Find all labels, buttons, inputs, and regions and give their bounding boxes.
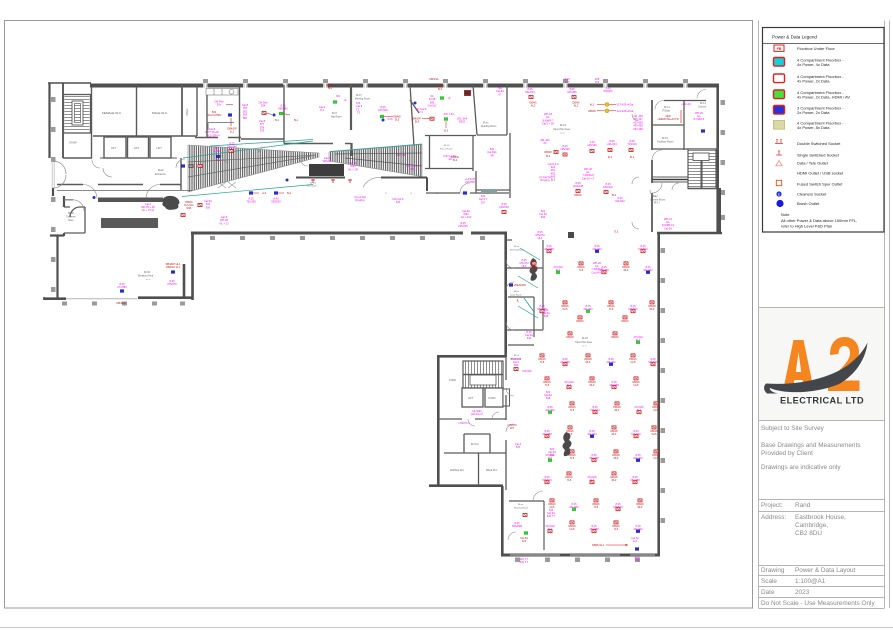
svg-text:IR-19: IR-19 [560, 124, 567, 127]
svg-text:Date: Date [761, 589, 775, 596]
svg-text:646: 646 [544, 314, 549, 318]
svg-text:2x2: 2x2 [633, 539, 638, 543]
svg-text:Address:: Address: [761, 514, 786, 521]
svg-text:+6: +6 [448, 96, 452, 100]
svg-text:HL + 12: HL + 12 [219, 221, 229, 225]
svg-text:LIFT: LIFT [468, 397, 474, 400]
svg-text:Project:: Project: [761, 502, 783, 509]
svg-text:021/022: 021/022 [615, 199, 625, 203]
svg-text:4x Power, 8x Data: 4x Power, 8x Data [797, 125, 830, 130]
svg-text:7L5: 7L5 [570, 456, 575, 460]
svg-text:Facilities Room: Facilities Room [657, 141, 673, 144]
svg-text:GL5: GL5 [634, 383, 639, 387]
svg-text:FEMALE W.C: FEMALE W.C [450, 469, 465, 472]
svg-text:Scale: Scale [761, 578, 777, 585]
svg-text:Reception: Reception [307, 185, 318, 188]
svg-text:5L2: 5L2 [546, 154, 551, 158]
svg-text:IR-18: IR-18 [582, 337, 589, 340]
svg-text:7L5: 7L5 [545, 383, 550, 387]
svg-text:4L1: 4L1 [608, 155, 613, 159]
svg-text:5x5 1.5m: 5x5 1.5m [444, 112, 455, 116]
svg-text:Floorbox Under Floor: Floorbox Under Floor [797, 46, 835, 51]
svg-text:Note: Note [781, 212, 790, 217]
svg-text:HL2: HL2 [538, 236, 543, 240]
svg-text:RL3: RL3 [612, 478, 617, 482]
svg-text:HL + TO H: HL + TO H [142, 208, 154, 212]
svg-text:LIFT: LIFT [134, 146, 140, 150]
svg-text:+REMOTE+ACTR: +REMOTE+ACTR [657, 117, 678, 121]
svg-text:Cat 6 + 5A: Cat 6 + 5A [542, 122, 555, 126]
svg-text:545(45): 545(45) [604, 89, 613, 93]
svg-text:7L5: 7L5 [579, 268, 584, 272]
svg-text:GL5: GL5 [532, 268, 537, 272]
svg-text:AL2: AL2 [574, 104, 579, 108]
svg-text:MALE W.C: MALE W.C [486, 469, 498, 472]
svg-text:HL1+1R+H: HL1+1R+H [207, 133, 220, 137]
svg-text:Focus Room: Focus Room [440, 148, 453, 150]
svg-text:All other Power & Data above 1: All other Power & Data above 150mm FFL, [781, 218, 857, 223]
svg-text:Base Drawings and Measurements: Base Drawings and Measurements [761, 442, 860, 449]
svg-text:Comms: Comms [698, 106, 707, 109]
svg-text:HDMI Outlet / USB socket: HDMI Outlet / USB socket [797, 171, 844, 176]
svg-text:275/276: 275/276 [167, 282, 177, 286]
svg-text:GL5: GL5 [631, 360, 636, 364]
svg-text:DB4/6A: DB4/6A [117, 301, 126, 305]
svg-text:Data / Tele Outlet: Data / Tele Outlet [797, 161, 829, 166]
svg-text:579: 579 [260, 129, 265, 133]
svg-text:HL + 1R: HL + 1R [348, 167, 358, 171]
svg-text:IR-xx: IR-xx [514, 291, 520, 293]
svg-text:017-423+4Cat: 017-423+4Cat [617, 103, 634, 107]
svg-text:IR-xx: IR-xx [514, 246, 520, 248]
svg-text:5L1: 5L1 [216, 159, 221, 162]
svg-text:640 T.T: 640 T.T [547, 514, 556, 518]
svg-text:+20/+21: +20/+21 [681, 102, 691, 106]
svg-text:277/280: 277/280 [117, 285, 127, 289]
svg-text:RISER: RISER [186, 108, 189, 116]
svg-text:4T6: 4T6 [635, 558, 640, 562]
svg-text:545/546: 545/546 [227, 145, 237, 149]
svg-text:225/226: 225/226 [458, 224, 468, 228]
svg-text:GL5: GL5 [654, 408, 659, 412]
svg-text:5L1: 5L1 [438, 87, 443, 91]
svg-text:541/044: 541/044 [525, 90, 535, 94]
svg-text:RL3: RL3 [615, 408, 620, 412]
svg-text:7L5: 7L5 [594, 505, 599, 509]
svg-text:Meeting Room: Meeting Room [514, 507, 528, 510]
svg-text:c: c [778, 192, 780, 196]
svg-text:RL3: RL3 [612, 432, 617, 436]
svg-text:2: 2 [385, 193, 387, 195]
svg-text:DB4/4A 1L1: DB4/4A 1L1 [166, 265, 180, 269]
svg-text:L: L [517, 299, 519, 303]
svg-text:Open Plan Area: Open Plan Area [553, 128, 571, 131]
svg-text:Cambridge,: Cambridge, [795, 522, 828, 529]
svg-text:934: 934 [261, 104, 266, 108]
svg-text:600: 600 [541, 215, 546, 219]
svg-text:213: 213 [595, 80, 600, 84]
svg-text:GL5: GL5 [654, 456, 659, 460]
svg-text:5L2: 5L2 [453, 158, 458, 162]
svg-text:4L2: 4L2 [590, 103, 595, 107]
svg-text:(234/238: (234/238 [573, 184, 584, 188]
svg-text:Meeting Room: Meeting Room [510, 249, 524, 252]
svg-text:RL3: RL3 [590, 383, 595, 387]
svg-text:8-x5: 8-x5 [387, 117, 393, 121]
svg-text:Double Switched Socket: Double Switched Socket [797, 141, 841, 146]
svg-text:STAIR: STAIR [69, 141, 77, 145]
svg-text:555/560: 555/560 [271, 200, 281, 204]
svg-text:LIFT: LIFT [111, 146, 117, 150]
svg-text:184/4(2): 184/4(2) [603, 185, 613, 189]
svg-text:COMS: COMS [488, 397, 496, 400]
svg-text:HL + 110: HL + 110 [461, 215, 472, 219]
svg-text:241/244: 241/244 [607, 142, 617, 146]
svg-text:7L5: 7L5 [609, 307, 614, 311]
svg-text:Rand: Rand [795, 502, 811, 509]
svg-text:1L1: 1L1 [230, 130, 235, 134]
svg-text:2x Power, 2x Data: 2x Power, 2x Data [797, 110, 830, 115]
svg-text:30+: 30+ [217, 103, 222, 107]
svg-text:7L5: 7L5 [568, 432, 573, 436]
svg-text:DB4/6: DB4/6 [574, 193, 582, 197]
svg-text:4x Power, 4x Data: 4x Power, 4x Data [797, 62, 830, 67]
svg-text:5x5: 5x5 [516, 445, 521, 449]
svg-text:307: 307 [510, 426, 515, 430]
svg-text:Routing: Routing [356, 198, 365, 202]
svg-text:IR-xx: IR-xx [514, 355, 520, 357]
svg-text:DB4/6: DB4/6 [611, 335, 619, 339]
svg-text:545(4B): 545(4B) [567, 90, 576, 94]
svg-text:refer to High Level P&D Plan: refer to High Level P&D Plan [781, 224, 832, 229]
svg-text:5x5 600: 5x5 600 [522, 369, 532, 373]
svg-text:Open Plan Area: Open Plan Area [575, 341, 593, 344]
svg-text:5L1: 5L1 [612, 193, 617, 197]
svg-text:DB4/6: DB4/6 [576, 319, 584, 323]
svg-text:Store: Store [68, 219, 74, 222]
svg-text:HL2: HL2 [522, 264, 527, 268]
svg-text:125/126: 125/126 [560, 147, 570, 151]
svg-text:Mtg Room: Mtg Room [331, 116, 342, 119]
svg-text:8-VWR-4: 8-VWR-4 [694, 117, 705, 121]
svg-text:GL5: GL5 [570, 527, 575, 531]
svg-text:xx m: xx m [582, 346, 587, 348]
svg-text:Subject to Site Survey: Subject to Site Survey [761, 425, 825, 432]
svg-text:176/07h +: 176/07h + [458, 421, 470, 425]
svg-text:3R: 3R [490, 153, 493, 157]
svg-text:648: 648 [546, 396, 551, 400]
svg-text:T3: T3 [357, 111, 361, 115]
svg-text:5L1: 5L1 [275, 119, 280, 122]
svg-text:+6: +6 [344, 98, 348, 102]
svg-text:DB4/8: DB4/8 [588, 109, 596, 113]
svg-text:7L5: 7L5 [570, 408, 575, 412]
svg-text:5L1: 5L1 [328, 86, 333, 90]
svg-text:IR-10: IR-10 [444, 145, 450, 147]
svg-text:Power & Data Layout: Power & Data Layout [795, 567, 856, 574]
svg-text:MALE W.C: MALE W.C [152, 111, 168, 115]
svg-text:RL3: RL3 [638, 505, 643, 509]
svg-text:4x Power, 2x Data: 4x Power, 2x Data [797, 78, 830, 83]
svg-text:Cat 5x2: Cat 5x2 [428, 104, 437, 108]
svg-text:T15/116: T15/116 [627, 142, 637, 146]
svg-text:Drawings are indicative only: Drawings are indicative only [761, 464, 841, 471]
svg-text:125/126: 125/126 [587, 143, 597, 147]
svg-text:h/D: h/D [336, 94, 340, 98]
svg-text:5L2: 5L2 [630, 155, 635, 159]
svg-text:B2 W.C: B2 W.C [471, 444, 479, 446]
svg-text:Meeting Room: Meeting Room [355, 98, 370, 101]
svg-text:AL2: AL2 [531, 104, 536, 108]
svg-text:DB4/8: DB4/8 [544, 150, 552, 154]
svg-text:xx m: xx m [146, 279, 151, 281]
svg-text:Reading Room: Reading Room [481, 126, 496, 128]
svg-text:7L5: 7L5 [614, 527, 619, 531]
svg-text:IR-17: IR-17 [654, 202, 661, 205]
svg-text:5x5: 5x5 [514, 363, 519, 367]
svg-text:Provided by Client: Provided by Client [761, 450, 813, 457]
svg-text:8.25/HS/WC: 8.25/HS/WC [512, 283, 527, 287]
svg-text:7L5: 7L5 [540, 360, 545, 364]
svg-text:Cat 6A + 5: Cat 6A + 5 [582, 176, 595, 180]
svg-text:D622: D622 [459, 120, 466, 124]
svg-text:RL3: RL3 [614, 456, 619, 460]
svg-text:GL5: GL5 [563, 307, 568, 311]
svg-text:IR-xx: IR-xx [518, 504, 524, 506]
svg-text:Routing: Routing [541, 178, 550, 182]
svg-text:WP+27: WP+27 [323, 159, 332, 163]
svg-text:7L5: 7L5 [567, 478, 572, 482]
svg-text:703+CAT5PL: 703+CAT5PL [206, 113, 222, 117]
svg-text:Quiet Room: Quiet Room [510, 294, 522, 297]
svg-text:Single Switched Socket: Single Switched Socket [797, 153, 840, 158]
svg-text:7.1: 7.1 [419, 110, 423, 114]
svg-text:Power & Data Legend: Power & Data Legend [772, 35, 817, 40]
svg-text:+L3: +L3 [262, 192, 267, 195]
svg-text:xx m: xx m [560, 133, 565, 135]
svg-text:DB(8)/1L1: DB(8)/1L1 [592, 543, 604, 547]
svg-text:GL5: GL5 [550, 505, 555, 509]
svg-text:Fused Switch Spur Outlet: Fused Switch Spur Outlet [797, 182, 843, 187]
svg-text:5L2: 5L2 [287, 192, 292, 195]
svg-text:5L3: 5L3 [444, 129, 449, 133]
svg-text:3R: 3R [448, 157, 451, 161]
svg-text:DB4/6: DB4/6 [621, 319, 629, 323]
svg-text:IT/Data: IT/Data [662, 110, 671, 113]
svg-text:Breakout Area: Breakout Area [138, 275, 154, 278]
svg-text:1:100@A1: 1:100@A1 [795, 578, 826, 585]
svg-text:025/026: 025/026 [499, 205, 509, 209]
svg-text:CB2 8DU: CB2 8DU [795, 530, 822, 537]
svg-text:640: 640 [527, 336, 532, 340]
svg-text:IR-xx: IR-xx [483, 123, 489, 125]
svg-text:5x5: 5x5 [396, 200, 401, 204]
svg-text:027/02A: 027/02A [378, 108, 388, 112]
svg-text:LIFT: LIFT [157, 146, 163, 150]
svg-text:207/208: 207/208 [465, 180, 475, 184]
svg-text:STAIR: STAIR [449, 379, 456, 382]
svg-text:4x Power, 2x Data, HDMI / AV: 4x Power, 2x Data, HDMI / AV [797, 94, 850, 99]
svg-text:B4x T.T: B4x T.T [520, 560, 529, 564]
svg-text:584: 584 [243, 116, 248, 120]
svg-text:434 438: 434 438 [633, 127, 643, 131]
svg-text:3x3: 3x3 [522, 539, 527, 543]
svg-text:5L1: 5L1 [294, 119, 299, 122]
svg-text:5L2: 5L2 [551, 178, 556, 182]
svg-text:Comms Room: Comms Room [650, 199, 665, 202]
svg-text:7L3: 7L3 [614, 230, 619, 234]
svg-text:2023: 2023 [795, 589, 810, 596]
svg-text:SP-01: SP-01 [310, 183, 317, 185]
svg-text:017: 017 [565, 80, 570, 84]
svg-text:Entrance: Entrance [155, 172, 166, 176]
svg-text:DB4/8: DB4/8 [566, 335, 574, 339]
svg-text:IR-07: IR-07 [356, 95, 362, 97]
svg-text:T5x/158: T5x/158 [246, 200, 256, 204]
svg-text:FEMALE W.C: FEMALE W.C [102, 111, 122, 115]
svg-text:FB: FB [777, 47, 782, 51]
svg-text:7L1: 7L1 [320, 108, 325, 112]
svg-text:Brush Outlet: Brush Outlet [797, 201, 820, 206]
svg-text:5L3: 5L3 [395, 118, 400, 122]
svg-text:RL3: RL3 [624, 268, 629, 272]
svg-text:Cleaners Socket: Cleaners Socket [797, 192, 827, 197]
svg-text:DB4/4A: DB4/4A [430, 77, 439, 81]
svg-text:421-425+4Cat: 421-425+4Cat [617, 109, 634, 113]
svg-text:080/082: 080/082 [278, 107, 288, 111]
svg-text:83A/83B: 83A/83B [512, 524, 522, 528]
svg-text:RL3: RL3 [586, 360, 591, 364]
svg-text:5x6: 5x6 [206, 205, 211, 209]
svg-text:207: 207 [481, 200, 486, 204]
svg-text:Cat 6A: Cat 6A [664, 226, 672, 230]
svg-text:Eastbrook House,: Eastbrook House, [795, 514, 846, 521]
svg-text:3: 3 [410, 193, 412, 195]
svg-text:R46: R46 [187, 206, 192, 210]
svg-text:ELECTRICAL LTD: ELECTRICAL LTD [780, 396, 864, 406]
svg-text:B-07: B-07 [332, 113, 338, 115]
svg-text:GL5: GL5 [652, 432, 657, 436]
svg-text:Main: Main [158, 168, 164, 172]
svg-text:Do Not Scale - Use Measurement: Do Not Scale - Use Measurements Only [761, 600, 875, 607]
svg-text:Cat5A: Cat5A [213, 149, 220, 153]
svg-text:RL3: RL3 [650, 307, 655, 311]
svg-text:5L3: 5L3 [415, 120, 420, 124]
svg-text:(HA 16+17: (HA 16+17 [471, 412, 484, 416]
svg-text:Drawing: Drawing [761, 567, 785, 574]
